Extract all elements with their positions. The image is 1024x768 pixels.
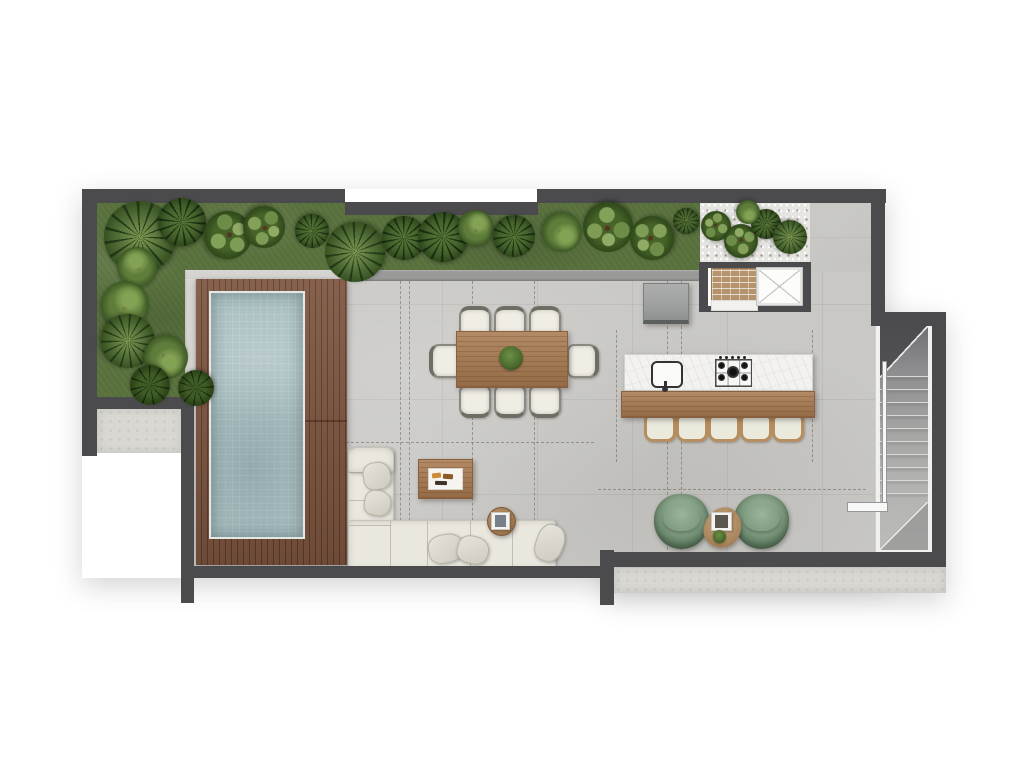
cooktop-burner (718, 374, 725, 381)
book-cover (715, 515, 728, 528)
cooktop-burner (741, 362, 748, 369)
cooktop-knob (725, 356, 728, 359)
cooktop-center-burner (727, 366, 739, 378)
armchair-seat (663, 503, 700, 532)
bar-stool (708, 415, 740, 442)
accent-table-plant (713, 530, 726, 543)
sink-faucet-knob (662, 387, 668, 392)
grill-cart-cabinet (643, 283, 689, 324)
exterior-ledge-bottom (614, 567, 946, 593)
bar-stool (772, 415, 804, 442)
wall-stair-right (932, 312, 946, 562)
barbecue-grill (711, 268, 757, 302)
wall-bottom-left (181, 566, 611, 578)
wall-top-left (82, 189, 345, 203)
tray-book (443, 474, 453, 480)
wall-top-right (537, 189, 886, 203)
deck-step-seam (305, 420, 347, 422)
service-shaft (757, 268, 802, 305)
wall-right-upper (871, 189, 885, 326)
stair-handrail-vertical (883, 362, 886, 508)
book-cover (495, 515, 506, 527)
stair-tread (880, 428, 928, 429)
sofa-cushion-divider (390, 521, 391, 567)
stair-tread (880, 415, 928, 416)
exterior-ledge-left (97, 408, 182, 453)
kitchen-island-bar (621, 391, 815, 418)
swimming-pool (209, 291, 305, 539)
island-sink (651, 361, 683, 388)
coffee-table-tray (428, 468, 463, 490)
stair-tread (880, 467, 928, 468)
cooktop-knob (743, 356, 746, 359)
wall-left (82, 189, 97, 456)
dining-chair (459, 385, 491, 418)
cooktop-burner (741, 374, 748, 381)
cooktop-knob (737, 356, 740, 359)
sofa-cushion-divider (349, 525, 391, 526)
side-table-book (491, 512, 510, 530)
dining-chair (494, 385, 526, 418)
stair-tread (880, 376, 928, 377)
wall-bottom-right (600, 552, 946, 567)
stair-winder-bottom (880, 502, 928, 550)
cooktop-burner (718, 362, 725, 369)
barbecue-counter-ledge (711, 300, 758, 311)
cooktop-knob (719, 356, 722, 359)
guide-line (598, 489, 866, 490)
stair-handrail-bottom (848, 503, 887, 511)
garden-curb-east (365, 270, 700, 281)
tray-book (435, 481, 447, 485)
cooktop-knob (731, 356, 734, 359)
dining-chair (567, 344, 599, 378)
stair-tread (880, 441, 928, 442)
floor-plan-canvas (0, 0, 1024, 768)
bar-stool (740, 415, 772, 442)
stair-tread (880, 389, 928, 390)
stair-tread (880, 480, 928, 481)
armchair-right (734, 494, 789, 549)
bar-stool (676, 415, 708, 442)
armchair-left (654, 494, 709, 549)
stair-tread (880, 493, 928, 494)
bar-stool (644, 415, 676, 442)
stair-tread (880, 402, 928, 403)
tray-book (432, 473, 441, 479)
accent-table-book (711, 512, 732, 531)
guide-line (616, 330, 617, 462)
dining-chair (529, 385, 561, 418)
sofa-cushion-divider (512, 521, 513, 567)
stair-tread (880, 454, 928, 455)
stair-winder-top (880, 326, 928, 378)
armchair-seat (743, 503, 780, 532)
dining-centerpiece-plant (499, 346, 523, 370)
